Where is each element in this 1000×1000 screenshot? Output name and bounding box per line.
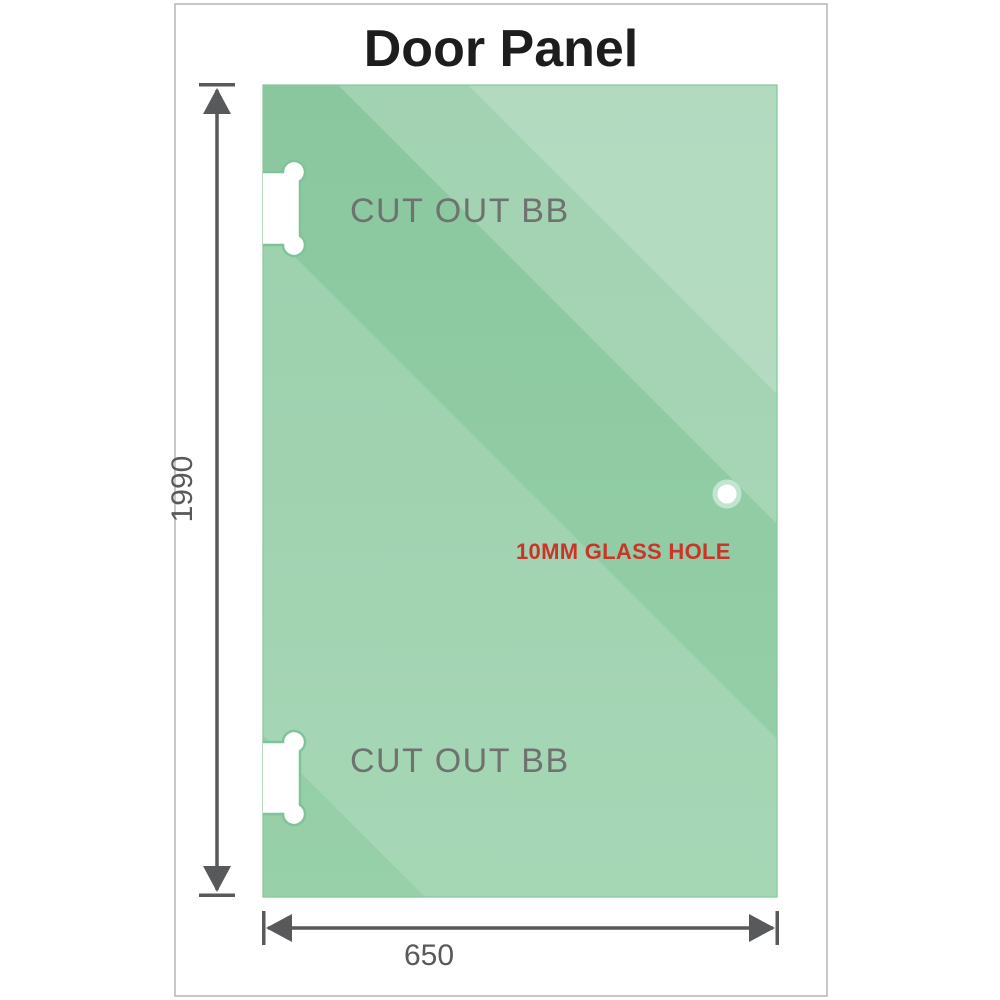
door-panel-drawing: Door Panel CUT OUT BB CUT OUT BB 10MM GL — [0, 0, 1000, 1000]
bottom-hinge-cutout — [263, 731, 305, 825]
glass-hole-label: 10MM GLASS HOLE — [516, 539, 731, 564]
bottom-hinge-cutout-shape — [263, 731, 305, 825]
cutout-label-bottom: CUT OUT BB — [350, 742, 570, 780]
width-dim-label: 650 — [404, 939, 454, 972]
cutout-label-top: CUT OUT BB — [350, 192, 570, 230]
door-panel-diagram: Door Panel CUT OUT BB CUT OUT BB 10MM GL — [0, 0, 1000, 1000]
diagram-title: Door Panel — [364, 20, 639, 78]
width-dim-cap-left — [262, 911, 266, 945]
top-hinge-cutout — [263, 161, 305, 256]
height-dim-cap-top — [199, 83, 235, 87]
width-dim-cap-right — [776, 911, 780, 945]
height-dim-cap-bottom — [199, 894, 235, 898]
glass-hole — [715, 482, 739, 506]
height-dim-label: 1990 — [166, 456, 199, 523]
top-hinge-cutout-shape — [263, 161, 305, 256]
